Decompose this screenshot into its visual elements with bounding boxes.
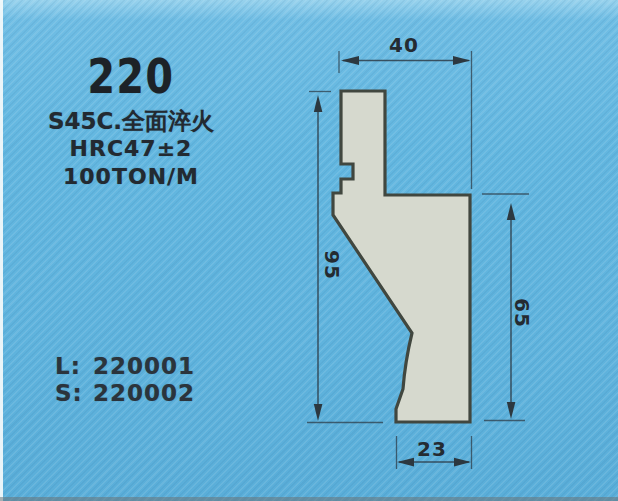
dim-label-front-height: 65 xyxy=(510,298,534,328)
punch-profile xyxy=(333,91,470,422)
arrowhead-up-icon xyxy=(507,203,516,220)
arrowhead-left-icon xyxy=(397,458,414,467)
profile-drawing: 40 95 65 23 xyxy=(0,0,618,501)
arrowhead-down-icon xyxy=(507,402,516,419)
arrowhead-right-icon xyxy=(453,56,471,65)
dim-label-overall-height: 95 xyxy=(320,250,344,280)
dim-front-height: 65 xyxy=(482,194,534,421)
arrowhead-down-icon xyxy=(314,404,323,421)
dim-label-bottom-width: 23 xyxy=(417,437,447,461)
arrowhead-up-icon xyxy=(314,95,323,112)
photo-bottom-edge xyxy=(0,497,618,501)
catalog-photo: 220 S45C.全面淬火 HRC47±2 100TON/M L:220001 … xyxy=(0,0,618,501)
arrowhead-right-icon xyxy=(454,458,471,467)
dim-label-top-width: 40 xyxy=(389,33,419,57)
arrowhead-left-icon xyxy=(341,56,359,65)
dim-bottom-width: 23 xyxy=(397,436,472,469)
